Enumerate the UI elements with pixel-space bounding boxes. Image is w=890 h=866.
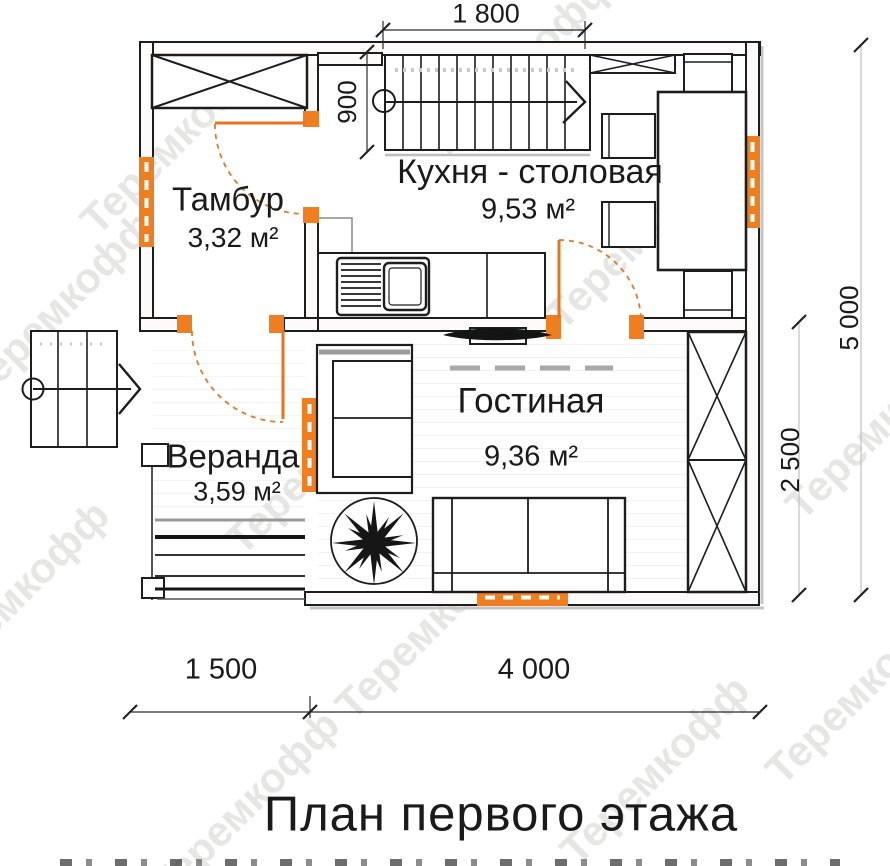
chair: [684, 271, 732, 318]
stairs: [373, 55, 590, 155]
floorplan-linework: [0, 0, 890, 866]
door-kitchen-living: [546, 240, 644, 339]
veranda-post: [142, 444, 168, 466]
cabinet-living: [317, 345, 412, 493]
room-label-tambur: Тамбур: [172, 183, 284, 216]
closet-tambur: [152, 55, 307, 108]
sink-basin: [384, 263, 426, 310]
room-label-veranda: Веранда: [167, 440, 300, 473]
entry-steps: [23, 331, 141, 447]
dim-label-2500: 2 500: [777, 427, 803, 492]
room-area-veranda: 3,59 м²: [193, 479, 281, 506]
chair: [602, 114, 655, 158]
chair: [602, 202, 655, 247]
room-area-kitchen: 9,53 м²: [481, 196, 575, 225]
dim-label-1800: 1 800: [452, 1, 520, 28]
closet-kitchen: [590, 55, 675, 73]
kitchen-counter: [318, 218, 545, 318]
door-tambur-veranda: [177, 315, 284, 422]
room-area-tambur: 3,32 м²: [188, 224, 279, 252]
plan-title: План первого этажа: [264, 791, 738, 840]
dim-label-1500: 1 500: [185, 656, 258, 685]
floor-plan-canvas: Теремкофф Теремкофф Теремкофф Теремкофф …: [0, 0, 890, 866]
cutoff-text-strip: [60, 859, 840, 866]
room-area-living: 9,36 м²: [484, 443, 578, 472]
dimension-bottom: [123, 696, 767, 719]
dim-label-4000: 4 000: [498, 656, 571, 685]
dim-label-900: 900: [334, 80, 360, 123]
dim-label-5000: 5 000: [836, 285, 862, 350]
dining-table: [658, 92, 746, 270]
room-label-living: Гостиная: [458, 384, 605, 419]
wardrobe-living: [688, 332, 746, 592]
sofa: [433, 498, 625, 592]
plant: [331, 498, 417, 585]
room-label-kitchen: Кухня - столовая: [397, 155, 663, 189]
chair: [684, 54, 732, 92]
